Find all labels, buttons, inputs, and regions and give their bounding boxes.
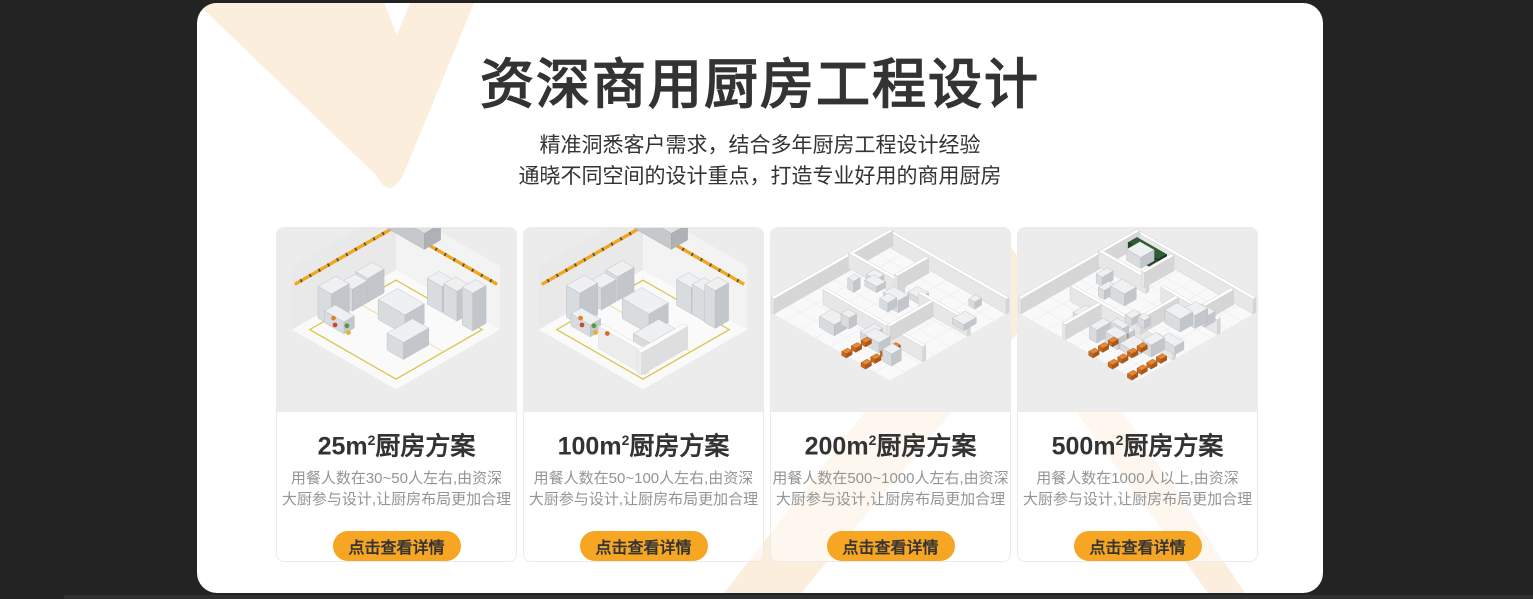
- kitchen-render-100m2-image: [524, 228, 763, 412]
- card-description: 用餐人数在50~100人左右,由资深 大厨参与设计,让厨房布局更加合理: [524, 468, 763, 510]
- plan-card-25m2: 25m2厨房方案 用餐人数在30~50人左右,由资深 大厨参与设计,让厨房布局更…: [276, 227, 517, 562]
- page-title: 资深商用厨房工程设计: [197, 3, 1323, 115]
- next-section-edge: [64, 595, 1533, 599]
- view-details-button[interactable]: 点击查看详情: [333, 531, 461, 561]
- kitchen-isometric-illustration: [277, 228, 516, 412]
- page: { "header": { "title": "资深商用厨房工程设计", "su…: [0, 0, 1533, 599]
- kitchen-render-25m2-image: [277, 228, 516, 412]
- plan-card-200m2: 200m2厨房方案 用餐人数在500~1000人左右,由资深 大厨参与设计,让厨…: [770, 227, 1011, 562]
- plan-card-100m2: 100m2厨房方案 用餐人数在50~100人左右,由资深 大厨参与设计,让厨房布…: [523, 227, 764, 562]
- kitchen-floorplan-illustration: [1018, 228, 1257, 412]
- plan-card-row: 25m2厨房方案 用餐人数在30~50人左右,由资深 大厨参与设计,让厨房布局更…: [276, 227, 1258, 562]
- content-panel: 资深商用厨房工程设计 精准洞悉客户需求，结合多年厨房工程设计经验 通晓不同空间的…: [197, 3, 1323, 593]
- card-description: 用餐人数在500~1000人左右,由资深 大厨参与设计,让厨房布局更加合理: [771, 468, 1010, 510]
- card-title: 500m2厨房方案: [1018, 425, 1257, 461]
- card-title: 25m2厨房方案: [277, 425, 516, 461]
- kitchen-floorplan-illustration: [771, 228, 1010, 412]
- view-details-button[interactable]: 点击查看详情: [827, 531, 955, 561]
- section-header: 资深商用厨房工程设计 精准洞悉客户需求，结合多年厨房工程设计经验 通晓不同空间的…: [197, 3, 1323, 192]
- view-details-button[interactable]: 点击查看详情: [580, 531, 708, 561]
- subtitle-line-1: 精准洞悉客户需求，结合多年厨房工程设计经验: [197, 130, 1323, 161]
- card-description: 用餐人数在1000人以上,由资深 大厨参与设计,让厨房布局更加合理: [1018, 468, 1257, 510]
- card-title: 100m2厨房方案: [524, 425, 763, 461]
- plan-card-500m2: 500m2厨房方案 用餐人数在1000人以上,由资深 大厨参与设计,让厨房布局更…: [1017, 227, 1258, 562]
- page-subtitle: 精准洞悉客户需求，结合多年厨房工程设计经验 通晓不同空间的设计重点，打造专业好用…: [197, 130, 1323, 192]
- kitchen-render-500m2-image: [1018, 228, 1257, 412]
- view-details-button[interactable]: 点击查看详情: [1074, 531, 1202, 561]
- card-description: 用餐人数在30~50人左右,由资深 大厨参与设计,让厨房布局更加合理: [277, 468, 516, 510]
- subtitle-line-2: 通晓不同空间的设计重点，打造专业好用的商用厨房: [197, 161, 1323, 192]
- card-title: 200m2厨房方案: [771, 425, 1010, 461]
- kitchen-render-200m2-image: [771, 228, 1010, 412]
- kitchen-isometric-illustration: [524, 228, 763, 412]
